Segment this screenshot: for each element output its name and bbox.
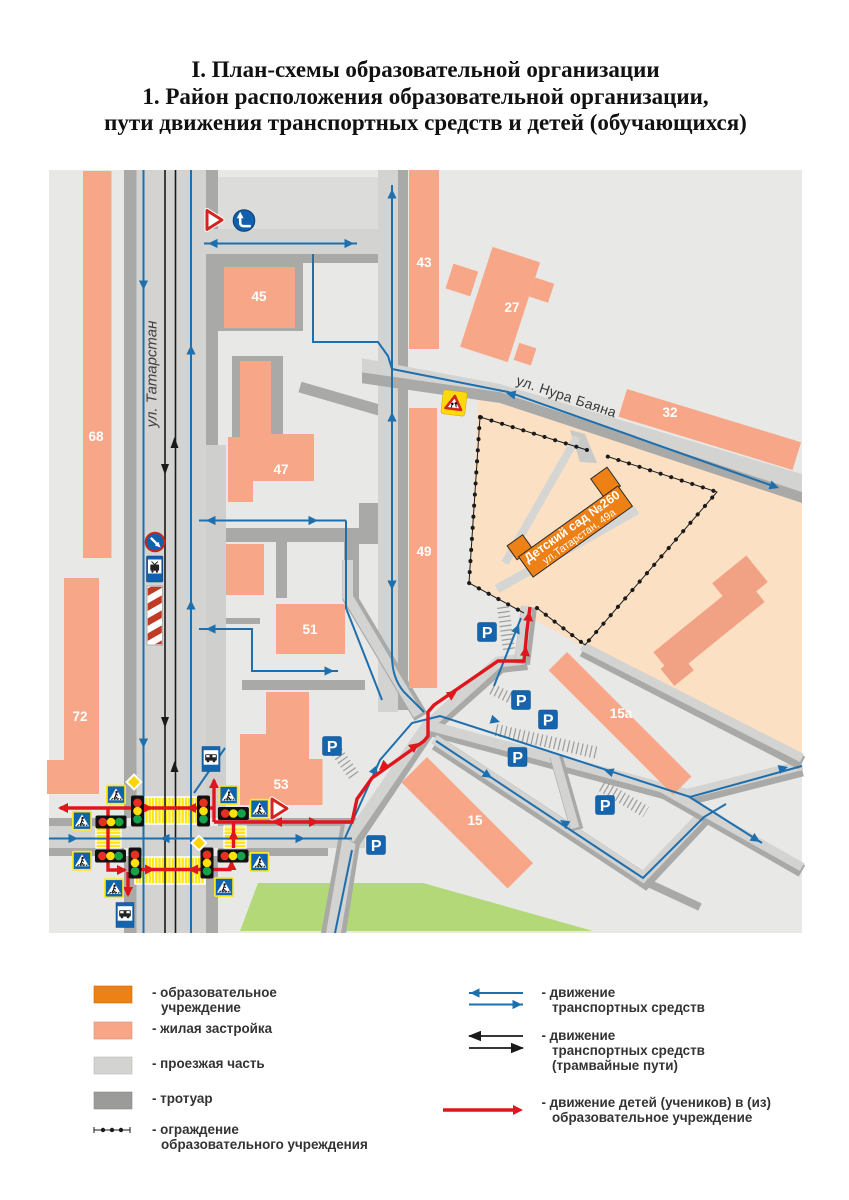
svg-text:(трамвайные пути): (трамвайные пути) [552,1058,678,1073]
svg-text:32: 32 [662,405,677,420]
svg-text:27: 27 [504,300,519,315]
svg-text:учреждение: учреждение [161,1000,241,1015]
svg-text:- ограждение: - ограждение [152,1122,239,1137]
svg-text:транспортных средств: транспортных средств [552,1043,705,1058]
svg-text:45: 45 [251,289,267,304]
svg-text:транспортных средств: транспортных средств [552,1000,705,1015]
svg-text:53: 53 [273,777,289,792]
svg-text:- движение: - движение [542,985,616,1000]
svg-text:- движение: - движение [542,1028,616,1043]
svg-text:15: 15 [467,813,483,828]
svg-text:- проезжая часть: - проезжая часть [152,1056,265,1071]
svg-text:образовательное учреждение: образовательное учреждение [552,1110,752,1125]
svg-text:- движение детей (учеников) в: - движение детей (учеников) в (из) [542,1095,771,1110]
svg-text:47: 47 [273,462,288,477]
svg-text:51: 51 [302,622,318,637]
svg-text:72: 72 [72,709,87,724]
svg-text:ул. Татарстан: ул. Татарстан [144,321,161,429]
svg-text:49: 49 [416,544,431,559]
svg-text:- жилая застройка: - жилая застройка [152,1021,273,1036]
svg-text:образовательного учреждения: образовательного учреждения [161,1137,368,1152]
svg-text:68: 68 [88,429,104,444]
svg-text:43: 43 [416,255,432,270]
svg-text:- тротуар: - тротуар [152,1091,213,1106]
svg-text:15а: 15а [610,706,633,721]
svg-text:- образовательное: - образовательное [152,985,277,1000]
